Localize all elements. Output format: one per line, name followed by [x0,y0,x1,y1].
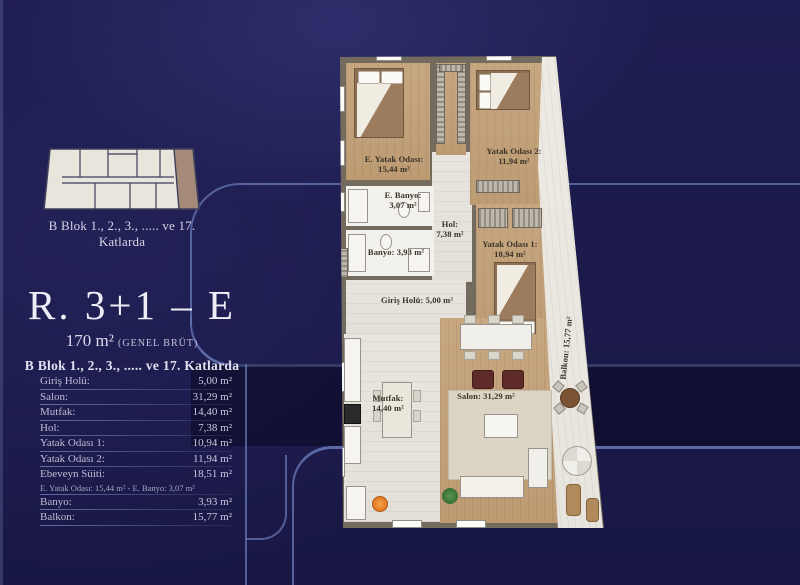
row-label: Mutfak: [40,406,75,418]
key-plan: B Blok 1., 2., 3., ..... ve 17. Katlarda [40,146,204,250]
row-value: 31,29 m² [193,391,232,403]
row-separator [40,525,232,526]
window [376,53,402,61]
lounger [566,484,581,516]
window [486,53,512,61]
chair [413,410,421,422]
kitchen-counter [344,338,361,402]
chair [413,390,421,402]
wardrobe-shelves [439,64,463,72]
dining-table [460,324,532,350]
label-giris-holu: Giriş Holü: 5,00 m² [381,295,453,305]
brochure-page: B Blok 1., 2., 3., ..... ve 17. Katlarda… [0,0,800,585]
row-label: Yatak Odası 2: [40,453,105,465]
label-mutfak: Mutfak:14,40 m² [372,393,404,413]
coffee-table [484,414,518,438]
key-plan-diagram [40,146,204,212]
row-label: Balkon: [40,511,75,523]
plant [442,488,458,504]
round-mat [372,496,388,512]
page-title: R. 3+1 – E [0,284,264,327]
row-value: 3,93 m² [198,496,232,508]
chair [464,351,476,360]
shower [348,234,366,272]
title-block: R. 3+1 – E 170 m² (GENEL BRÜT) B Blok 1.… [0,284,264,374]
bedroom2-bed [476,70,530,110]
utility-closet [338,248,348,278]
bedroom1-wardrobe [512,208,542,228]
label-bedroom2: Yatak Odası 2:11,94 m² [486,146,541,166]
label-hol: Hol:7,38 m² [436,219,463,239]
kitchen-counter [344,426,361,464]
table-row: Giriş Holü:5,00 m² [40,374,232,389]
bedroom2-dresser [476,180,520,193]
wardrobe-shelves [436,64,445,144]
sofa [460,476,524,498]
row-value: 11,94 m² [193,453,232,465]
stove [344,404,361,424]
table-row: Yatak Odası 2:11,94 m² [40,452,232,467]
gross-area-value: 170 m² [66,331,114,350]
row-value: 5,00 m² [198,375,232,387]
label-master-bedroom: E. Yatak Odası:15,44 m² [365,154,424,174]
deco-corner-line [245,455,287,540]
row-label: Salon: [40,391,68,403]
lounger [586,498,599,522]
chair [488,315,500,324]
row-value: 15,77 m² [193,511,232,523]
table-row: Hol:7,38 m² [40,421,232,436]
table-subrow: E. Yatak Odası: 15,44 m² - E. Banyo: 3,0… [40,482,232,494]
chair [512,351,524,360]
table-row: Salon:31,29 m² [40,390,232,405]
key-plan-caption: B Blok 1., 2., 3., ..... ve 17. Katlarda [40,218,204,250]
window [337,192,345,212]
room-hol-floor [432,152,472,282]
wardrobe-shelves [457,64,466,144]
gross-area-line: 170 m² (GENEL BRÜT) [0,331,264,351]
chair [512,315,524,324]
label-banyo: Banyo: 3,93 m² [368,247,424,257]
window [337,140,345,166]
row-value: 14,40 m² [193,406,232,418]
bathtub [348,189,368,223]
table-row: Banyo:3,93 m² [40,495,232,510]
label-bedroom1: Yatak Odası 1:10,94 m² [482,239,537,259]
master-bed [354,68,404,138]
bedroom1-wardrobe [478,208,508,228]
table-row: Ebeveyn Süiti:18,51 m² [40,467,232,482]
chaise [528,448,548,488]
window [337,86,345,112]
table-row: Yatak Odası 1:10,94 m² [40,436,232,451]
row-label: Banyo: [40,496,72,508]
floor-plan: E. Yatak Odası:15,44 m² E. Banyo:3,07 m²… [336,52,608,530]
laundry-unit [346,486,366,520]
row-label: Hol: [40,422,60,434]
row-value: 18,51 m² [193,468,232,480]
armchair [472,370,494,389]
row-value: 7,38 m² [198,422,232,434]
table-row: Balkon:15,77 m² [40,510,232,525]
row-label: Giriş Holü: [40,375,90,387]
label-salon: Salon: 31,29 m² [457,391,515,401]
gross-area-note: (GENEL BRÜT) [118,338,198,349]
chair [488,351,500,360]
row-value: 10,94 m² [193,437,232,449]
chair [464,315,476,324]
label-ebanyo: E. Banyo:3,07 m² [385,190,422,210]
window [392,520,422,528]
window [456,520,486,528]
armchair [502,370,524,389]
table-row: Mutfak:14,40 m² [40,405,232,420]
area-table: Giriş Holü:5,00 m² Salon:31,29 m² Mutfak… [40,374,232,526]
floors-line: B Blok 1., 2., 3., ..... ve 17. Katlarda [0,358,264,374]
row-label: Yatak Odası 1: [40,437,105,449]
umbrella [562,446,592,476]
deco-vertical-line [245,364,247,585]
row-label: Ebeveyn Süiti: [40,468,105,480]
